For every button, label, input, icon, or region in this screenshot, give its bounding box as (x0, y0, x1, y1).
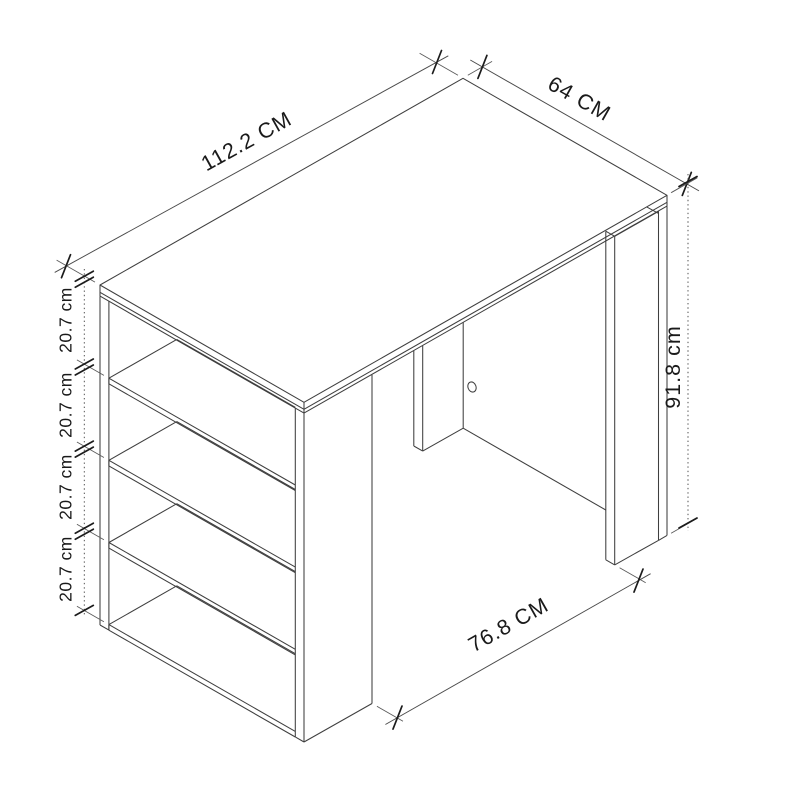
dim-label-top-depth: 64 CM (544, 72, 615, 127)
dim-extension-line (57, 53, 458, 282)
rack-bottom-shelf (109, 586, 295, 737)
rack-shelf-1 (109, 339, 295, 490)
dim-label-shelf-gap-1: 20.7 cm (56, 287, 76, 353)
dim-bottom-span: 76.8 CM (377, 568, 651, 729)
leg-front-plank (606, 211, 659, 565)
technical-drawing-page: 112.2 CM 64 CM 91.8 cm 76.8 CM 20.7 cm 2… (0, 0, 800, 800)
dim-label-shelf-gap-4: 20.7 cm (56, 536, 76, 602)
dim-label-height: 91.8 cm (661, 325, 685, 408)
rack-shelf-3 (109, 504, 295, 655)
rack-shelf-2 (109, 422, 295, 573)
rack-front-panel (295, 375, 372, 742)
dim-label-shelf-gap-2: 20.7 cm (56, 372, 76, 438)
dim-extension-line (377, 568, 646, 722)
rack-back-panel-edge (100, 296, 109, 630)
table-top-surface (100, 78, 667, 402)
dim-label-bottom-span: 76.8 CM (464, 593, 553, 657)
dim-line (55, 56, 449, 273)
dim-label-top-length: 112.2 CM (197, 107, 296, 176)
right-leg (414, 206, 667, 565)
furniture-isometric-drawing: 112.2 CM 64 CM 91.8 cm 76.8 CM 20.7 cm 2… (0, 0, 800, 800)
dim-line (385, 574, 650, 725)
cam-hole (466, 381, 477, 394)
table-top (100, 78, 667, 413)
dim-line (470, 60, 699, 191)
table-top-corner-edges (100, 195, 667, 413)
dim-shelf-gaps: 20.7 cm 20.7 cm 20.7 cm 20.7 cm (56, 269, 104, 622)
dim-top-length: 112.2 CM (55, 51, 458, 283)
dim-label-shelf-gap-3: 20.7 cm (56, 454, 76, 520)
dim-top-depth: 64 CM (468, 55, 699, 195)
leg-side-panel (463, 206, 667, 540)
table-top-rim-line (100, 202, 667, 409)
leg-back-plank (414, 323, 463, 452)
dim-extension-line (468, 61, 696, 192)
dim-tick (75, 271, 93, 615)
